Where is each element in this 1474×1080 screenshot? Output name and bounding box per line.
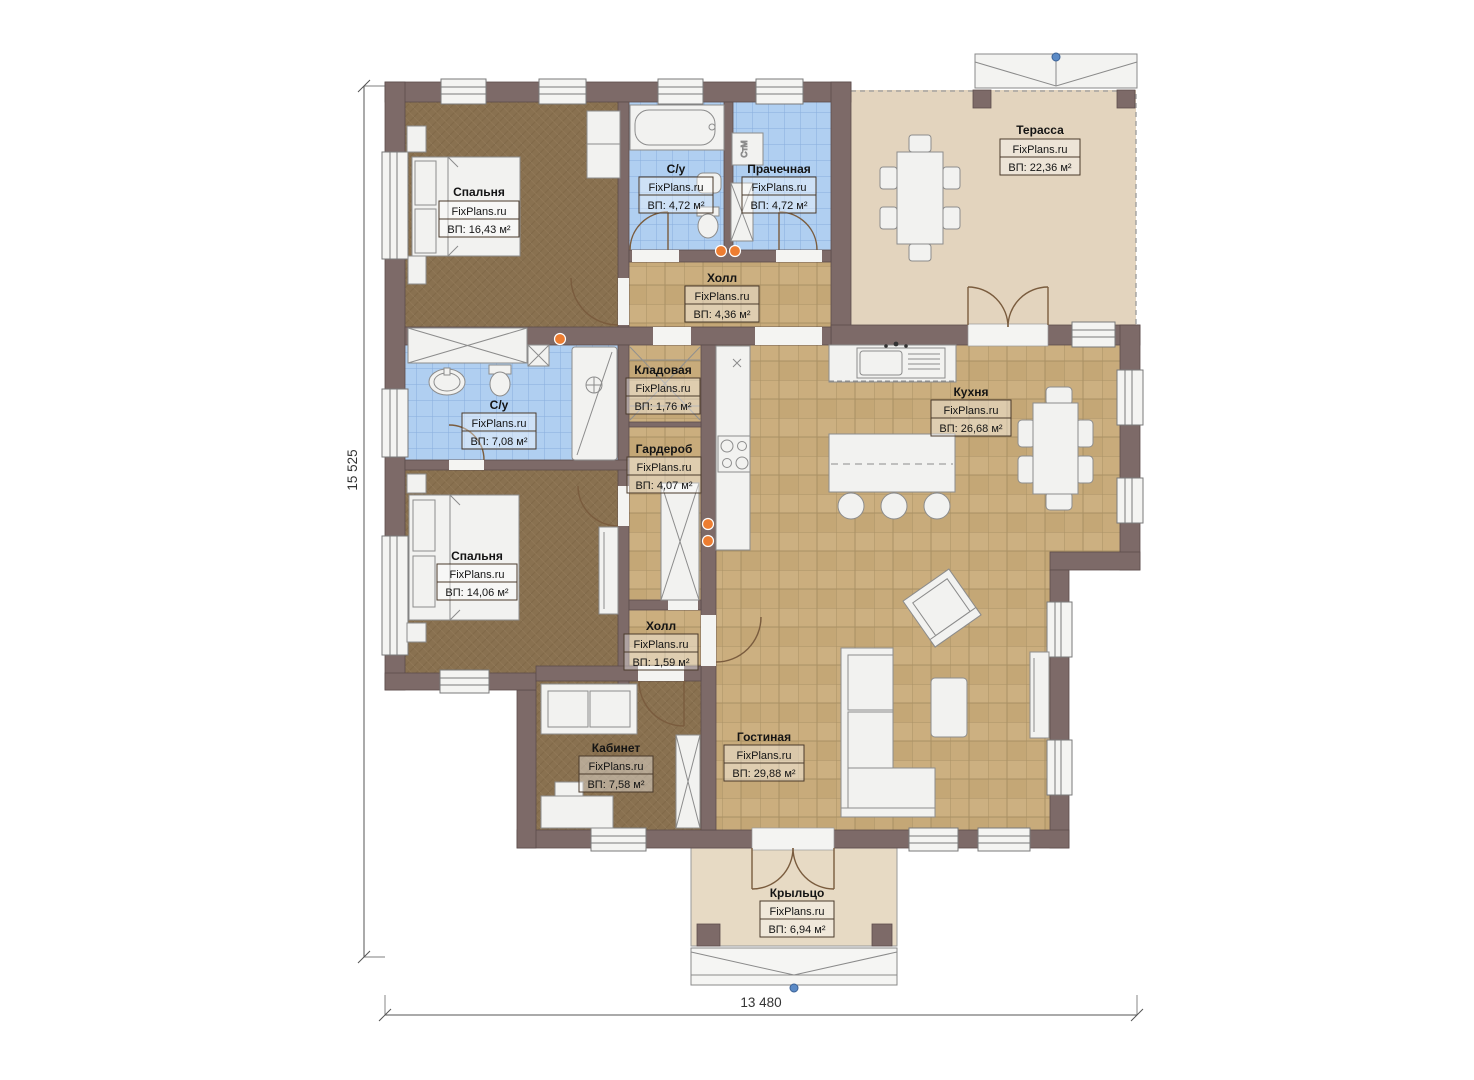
svg-text:ВП: 29,88 м²: ВП: 29,88 м² xyxy=(732,768,796,780)
svg-text:ВП: 7,08 м²: ВП: 7,08 м² xyxy=(470,436,527,448)
svg-text:Холл: Холл xyxy=(646,619,676,633)
svg-text:FixPlans.ru: FixPlans.ru xyxy=(769,906,824,918)
svg-text:FixPlans.ru: FixPlans.ru xyxy=(451,206,506,218)
svg-text:15 525: 15 525 xyxy=(345,449,360,490)
svg-text:FixPlans.ru: FixPlans.ru xyxy=(751,182,806,194)
svg-text:Спальня: Спальня xyxy=(451,549,503,563)
svg-text:FixPlans.ru: FixPlans.ru xyxy=(636,462,691,474)
svg-text:ВП: 7,58 м²: ВП: 7,58 м² xyxy=(587,779,644,791)
svg-text:FixPlans.ru: FixPlans.ru xyxy=(449,569,504,581)
svg-text:13 480: 13 480 xyxy=(740,995,781,1010)
svg-text:Гардероб: Гардероб xyxy=(636,442,693,456)
svg-text:ВП: 4,72 м²: ВП: 4,72 м² xyxy=(750,200,807,212)
svg-text:Холл: Холл xyxy=(707,271,737,285)
svg-text:С/у: С/у xyxy=(490,398,509,412)
svg-text:Кухня: Кухня xyxy=(953,385,988,399)
svg-text:Крыльцо: Крыльцо xyxy=(770,886,825,900)
svg-text:ВП: 14,06 м²: ВП: 14,06 м² xyxy=(445,587,509,599)
svg-text:ВП: 4,36 м²: ВП: 4,36 м² xyxy=(693,309,750,321)
svg-text:ВП: 4,72 м²: ВП: 4,72 м² xyxy=(647,200,704,212)
svg-text:FixPlans.ru: FixPlans.ru xyxy=(736,750,791,762)
svg-text:СтМ: СтМ xyxy=(739,140,749,157)
svg-text:ВП: 16,43 м²: ВП: 16,43 м² xyxy=(447,224,511,236)
svg-text:Терасса: Терасса xyxy=(1016,123,1064,137)
svg-text:ВП: 6,94 м²: ВП: 6,94 м² xyxy=(768,924,825,936)
svg-text:FixPlans.ru: FixPlans.ru xyxy=(1012,144,1067,156)
svg-text:Гостиная: Гостиная xyxy=(737,730,791,744)
svg-text:Спальня: Спальня xyxy=(453,185,505,199)
svg-text:FixPlans.ru: FixPlans.ru xyxy=(471,418,526,430)
svg-text:FixPlans.ru: FixPlans.ru xyxy=(635,383,690,395)
svg-text:Прачечная: Прачечная xyxy=(747,162,811,176)
svg-text:ВП: 1,59 м²: ВП: 1,59 м² xyxy=(632,657,689,669)
svg-text:Кладовая: Кладовая xyxy=(634,363,691,377)
svg-text:С/у: С/у xyxy=(667,162,686,176)
svg-text:ВП: 26,68 м²: ВП: 26,68 м² xyxy=(939,423,1003,435)
svg-text:FixPlans.ru: FixPlans.ru xyxy=(943,405,998,417)
svg-text:ВП: 22,36 м²: ВП: 22,36 м² xyxy=(1008,162,1072,174)
svg-text:FixPlans.ru: FixPlans.ru xyxy=(633,639,688,651)
svg-text:Кабинет: Кабинет xyxy=(592,741,641,755)
svg-text:FixPlans.ru: FixPlans.ru xyxy=(648,182,703,194)
svg-text:ВП: 1,76 м²: ВП: 1,76 м² xyxy=(634,401,691,413)
svg-text:ВП: 4,07 м²: ВП: 4,07 м² xyxy=(635,480,692,492)
svg-text:FixPlans.ru: FixPlans.ru xyxy=(588,761,643,773)
svg-text:FixPlans.ru: FixPlans.ru xyxy=(694,291,749,303)
